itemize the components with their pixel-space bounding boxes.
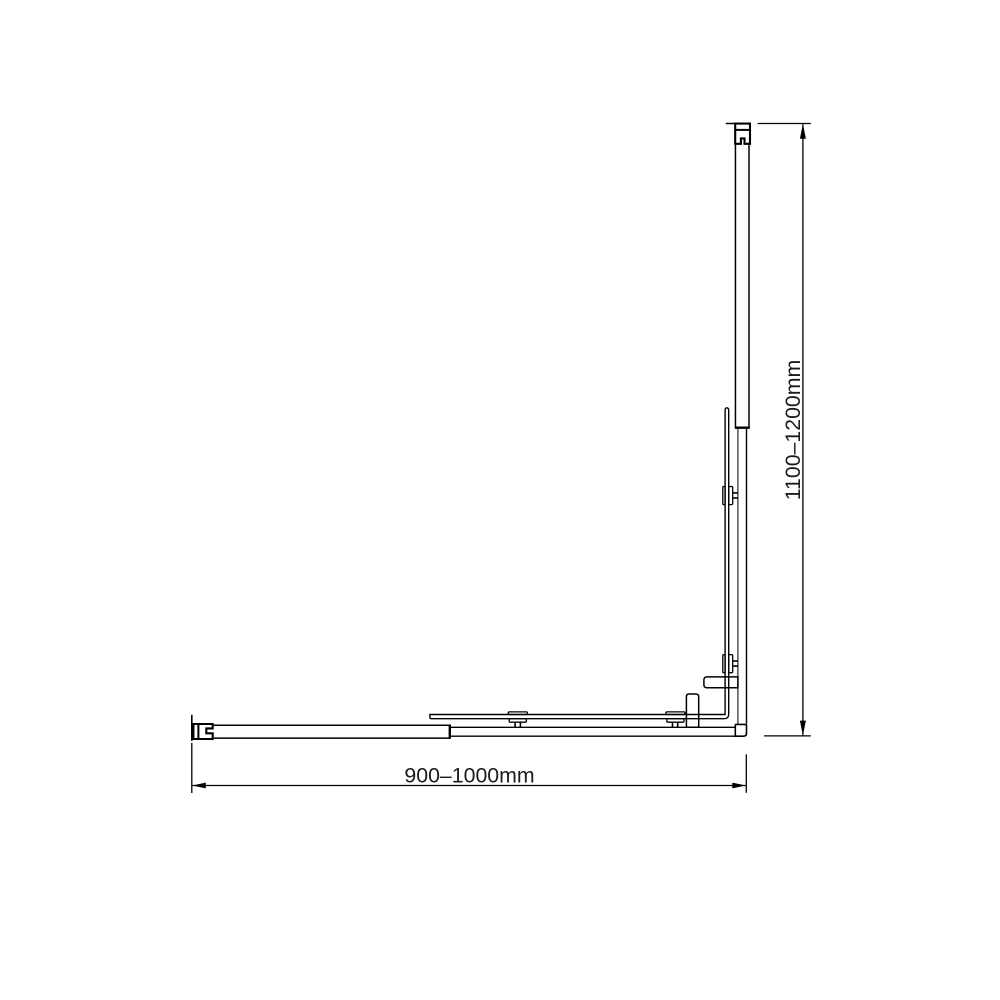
svg-text:1100–1200mm: 1100–1200mm (781, 360, 805, 501)
svg-text:900–1000mm: 900–1000mm (404, 764, 534, 788)
